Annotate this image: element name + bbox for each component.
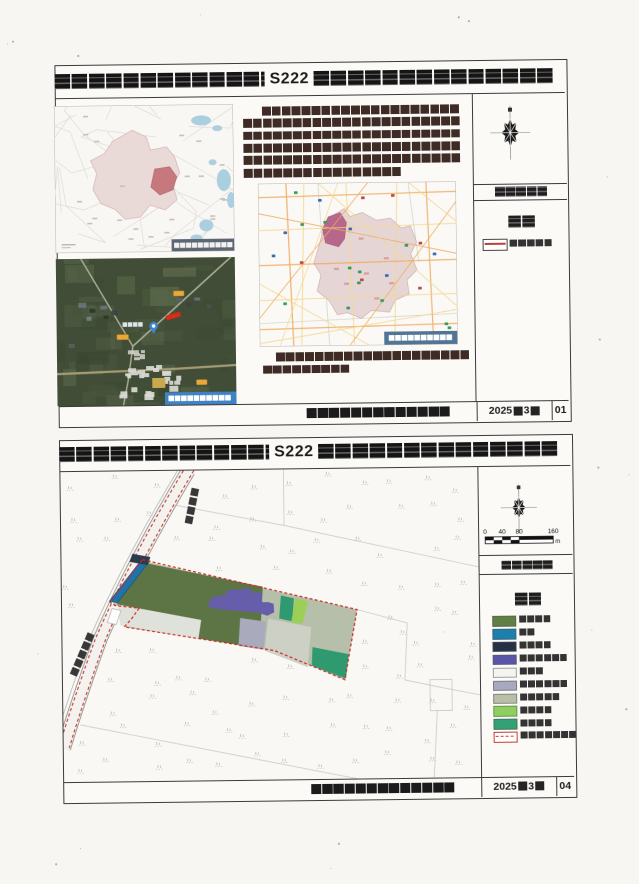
svg-text:m: m — [555, 539, 560, 545]
svg-text:80: 80 — [515, 529, 523, 536]
svg-text:160: 160 — [548, 528, 559, 535]
svg-text:0: 0 — [483, 529, 487, 536]
svg-text:40: 40 — [498, 529, 506, 536]
